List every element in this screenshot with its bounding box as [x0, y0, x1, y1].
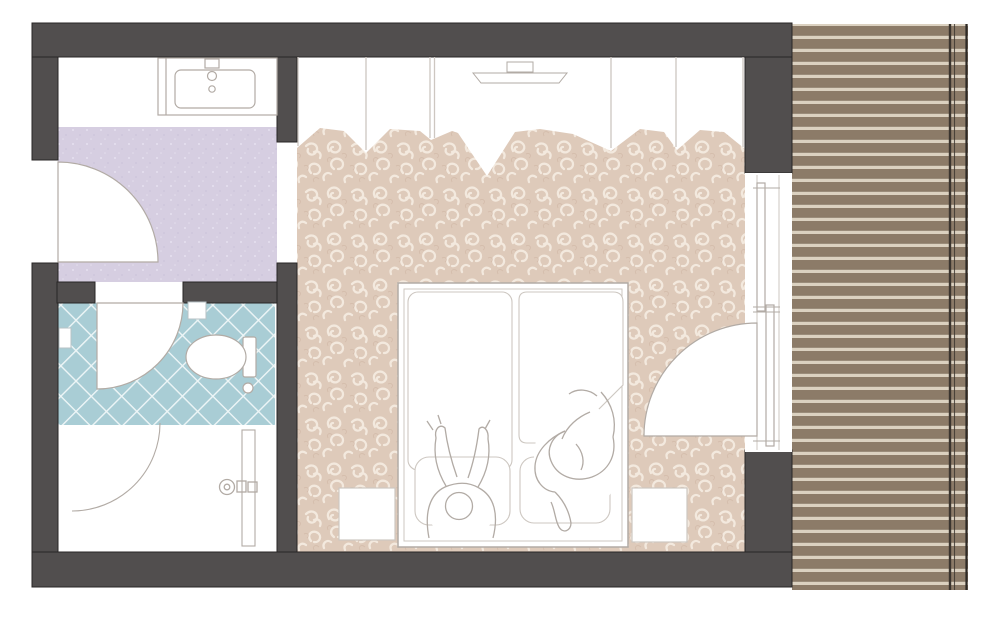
wall-right-lower [745, 450, 792, 552]
wall-divider-horizontal-right [183, 282, 277, 303]
wall-left-upper [32, 57, 58, 160]
wall-divider-horizontal-left [57, 282, 95, 303]
floor-plan-drawing [0, 0, 1000, 621]
floor-plan-canvas [0, 0, 1000, 621]
wall-top [32, 23, 792, 57]
double-bed [398, 283, 628, 547]
washbasin-counter [158, 58, 277, 115]
sliding-window-panel-lower [766, 305, 774, 446]
wall-divider-vertical-lower [277, 263, 297, 552]
wall-left-lower [32, 263, 58, 554]
wall-niche [59, 328, 71, 348]
duvet-left [408, 292, 512, 470]
nightstand-left [339, 488, 395, 540]
sliding-window-panel-upper [757, 183, 765, 311]
wall-bottom [32, 552, 792, 587]
shower-niche [188, 302, 206, 319]
wall-divider-vertical-upper [277, 57, 297, 142]
wall-right-upper [745, 57, 792, 173]
balcony-deck [792, 24, 968, 590]
nightstand-right [632, 488, 687, 542]
toilet-roll-holder [243, 383, 253, 393]
